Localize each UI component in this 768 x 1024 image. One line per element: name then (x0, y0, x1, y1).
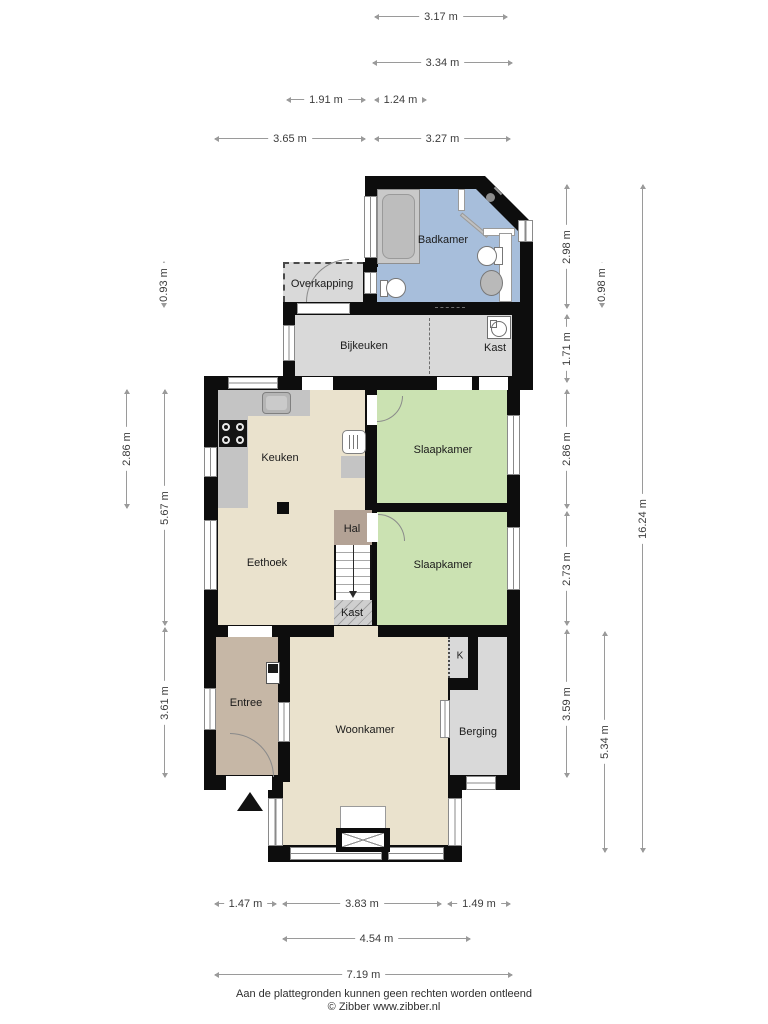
window-entree-left (204, 688, 216, 730)
dim-top-3-17: 3.17 m (375, 16, 507, 17)
room-label-hal: Hal (344, 523, 361, 535)
wall-between-slaapkamers (377, 503, 507, 512)
threshold-overkapping (297, 303, 350, 314)
dim-right-1-71: 1.71 m (566, 315, 567, 382)
window-bijkeuken-left (283, 325, 295, 361)
boiler-icon (342, 430, 366, 454)
door-opening-entree-front (226, 776, 272, 790)
bathtub-icon (377, 189, 420, 264)
window-keuken-top (228, 377, 278, 389)
dim-left-3-61: 3.61 m (164, 628, 165, 777)
floor-berging-upper (478, 637, 507, 690)
window-keuken-left (204, 447, 217, 477)
door-opening-bijkeuken-keuken (302, 377, 333, 390)
window-berging-left (440, 700, 450, 738)
room-label-kast-stairs: Kast (341, 607, 363, 619)
window-bay-bottom-2 (388, 847, 444, 860)
copyright-text: © Zibber www.zibber.nl (0, 1001, 768, 1013)
dim-top-1-24: 1.24 m (375, 99, 426, 100)
wall-main-left (204, 376, 218, 630)
door-opening-passage-slaapkamer (437, 377, 472, 390)
window-bay-right (448, 798, 462, 846)
dim-right-16-24: 16.24 m (642, 185, 643, 852)
room-label-overkapping: Overkapping (291, 278, 353, 290)
entrance-arrow-icon (237, 792, 263, 811)
window-entree-woonkamer (278, 702, 290, 742)
dim-bottom-7-19: 7.19 m (215, 974, 512, 975)
kitchen-sink-icon (262, 392, 291, 414)
room-label-keuken: Keuken (261, 452, 298, 464)
washing-machine-icon (487, 316, 511, 339)
room-label-slaapkamer-2: Slaapkamer (414, 559, 473, 571)
window-badkamer-right (518, 220, 533, 242)
kitchen-counter-left (218, 390, 248, 508)
door-opening-kast-slaapkamer (479, 377, 508, 390)
door-opening-hal-slaapkamer2 (367, 513, 378, 542)
floor-woonkamer (290, 637, 448, 782)
window-overkapping-vent (364, 272, 377, 294)
column (277, 502, 289, 514)
dim-bottom-1-49: 1.49 m (448, 903, 510, 904)
room-label-k-closet: K (457, 651, 464, 662)
dim-right-5-34: 5.34 m (604, 632, 605, 852)
window-slaapkamer2-right (507, 527, 520, 590)
wall-berging-right (507, 625, 520, 790)
door-opening-eethoek-woonkamer (334, 626, 378, 637)
window-eethoek-left (204, 520, 217, 590)
dim-right-2-86: 2.86 m (566, 390, 567, 508)
dim-right-2-73: 2.73 m (566, 512, 567, 625)
dim-right-3-59: 3.59 m (566, 630, 567, 777)
dim-top-1-91: 1.91 m (287, 99, 365, 100)
dim-bottom-3-83: 3.83 m (283, 903, 441, 904)
toilet-icon-badkamer (477, 246, 497, 266)
fireplace-flue (342, 833, 384, 847)
fireplace-mantel (340, 806, 386, 830)
room-label-entree: Entree (230, 697, 262, 709)
room-label-kast-washing: Kast (484, 342, 506, 354)
room-label-bijkeuken: Bijkeuken (340, 340, 388, 352)
shower-partition-icon (458, 189, 465, 211)
toilet-icon-wc (386, 278, 406, 298)
door-dashed-badkamer-passage (435, 307, 465, 308)
room-label-slaapkamer-1: Slaapkamer (414, 444, 473, 456)
room-label-berging: Berging (459, 726, 497, 738)
floorplan-page: Badkamer Overkapping Bijkeuken Kast Keuk… (0, 0, 768, 1024)
dim-left-5-67: 5.67 m (164, 390, 165, 625)
dim-top-3-34: 3.34 m (373, 62, 512, 63)
door-berging (466, 776, 496, 790)
door-opening-eethoek-entree (228, 626, 272, 637)
window-bay-left (268, 798, 283, 846)
dim-right-0-98: 0.98 m (601, 263, 602, 307)
shaft (499, 233, 512, 302)
door-dashed-bijkeuken-passage (429, 318, 430, 374)
window-badkamer-left (364, 196, 377, 258)
dim-bottom-4-54: 4.54 m (283, 938, 470, 939)
sink-icon-badkamer (480, 270, 503, 296)
kitchen-block (341, 456, 365, 478)
shower-head-icon (486, 193, 495, 202)
dim-left-0-93: 0.93 m (163, 262, 164, 307)
floor-passage (430, 315, 462, 376)
dim-bottom-1-47: 1.47 m (215, 903, 276, 904)
room-label-eethoek: Eethoek (247, 557, 287, 569)
door-opening-slaapkamer1 (367, 395, 377, 425)
stove-icon (219, 420, 247, 447)
disclaimer-text: Aan de plattegronden kunnen geen rechten… (0, 988, 768, 1000)
room-label-woonkamer: Woonkamer (335, 724, 394, 736)
dim-top-3-27: 3.27 m (375, 138, 510, 139)
dim-right-2-98: 2.98 m (566, 185, 567, 308)
dim-left-2-86: 2.86 m (126, 390, 127, 508)
room-label-badkamer: Badkamer (418, 234, 468, 246)
meter-cupboard-icon (266, 662, 280, 684)
window-slaapkamer1-right (507, 415, 520, 475)
dim-top-3-65: 3.65 m (215, 138, 365, 139)
stairs-icon (334, 545, 372, 600)
